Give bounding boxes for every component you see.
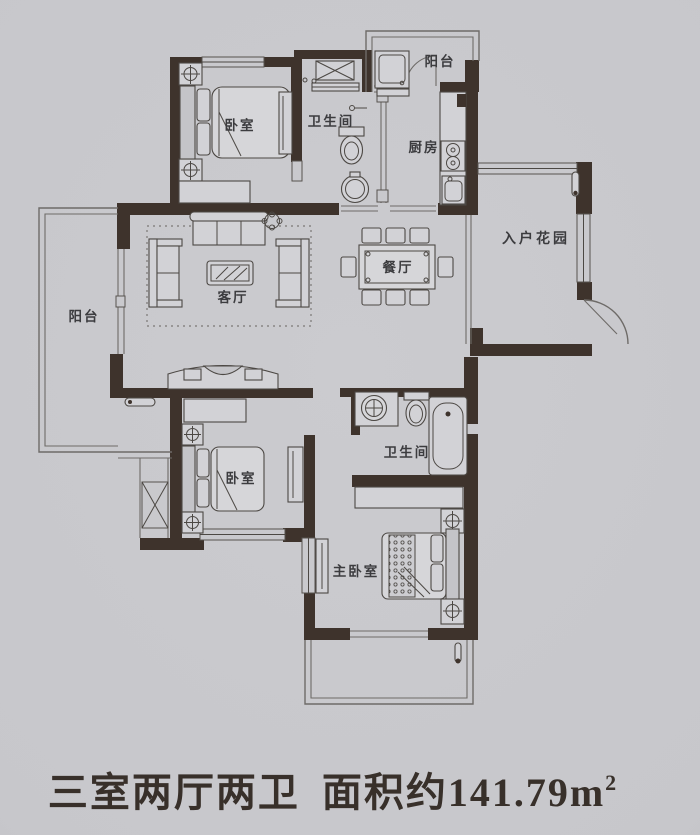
room-label-entry-garden: 入户花园 (502, 230, 570, 246)
floor-plan: 阳台 卧室 卫生间 厨房 入户花园 餐厅 客厅 阳台 卧室 卫生间 主卧室 (0, 0, 700, 760)
room-label-bathroom-lower: 卫生间 (384, 444, 431, 460)
room-label-living: 客厅 (217, 289, 249, 305)
furniture-tv (168, 366, 278, 390)
room-label-bedroom-top: 卧室 (225, 117, 256, 133)
furniture-balcony-top (375, 51, 409, 96)
caption-area-unit: m (570, 770, 605, 815)
furniture-kitchen (440, 92, 466, 205)
balcony-outlines (39, 31, 628, 704)
caption-area-prefix: 面积约 (322, 770, 448, 815)
room-label-bedroom-lower: 卧室 (226, 470, 257, 486)
room-label-bathroom-top: 卫生间 (308, 113, 355, 129)
furniture-bedroom-lower (182, 399, 303, 533)
caption-area-unit-sup: 2 (605, 770, 616, 795)
floorplan-image: 阳台 卧室 卫生间 厨房 入户花园 餐厅 客厅 阳台 卧室 卫生间 主卧室 三室… (0, 0, 700, 835)
room-label-kitchen: 厨房 (409, 139, 440, 155)
caption-area-value: 141.79 (448, 770, 570, 815)
room-label-dining: 餐厅 (382, 259, 414, 275)
furniture-entry-garden (572, 172, 579, 196)
caption-layout: 三室两厅两卫 (48, 770, 300, 815)
furniture-bathroom-top (312, 61, 369, 203)
room-label-balcony-top: 阳台 (425, 53, 456, 69)
room-label-balcony-left: 阳台 (69, 308, 100, 324)
furniture-bathroom-lower (355, 389, 467, 475)
room-label-master-bedroom: 主卧室 (333, 563, 380, 579)
caption: 三室两厅两卫面积约141.79m2 (0, 760, 664, 824)
furniture-balcony-bottom (455, 643, 461, 664)
furniture-master-bedroom (316, 487, 464, 624)
